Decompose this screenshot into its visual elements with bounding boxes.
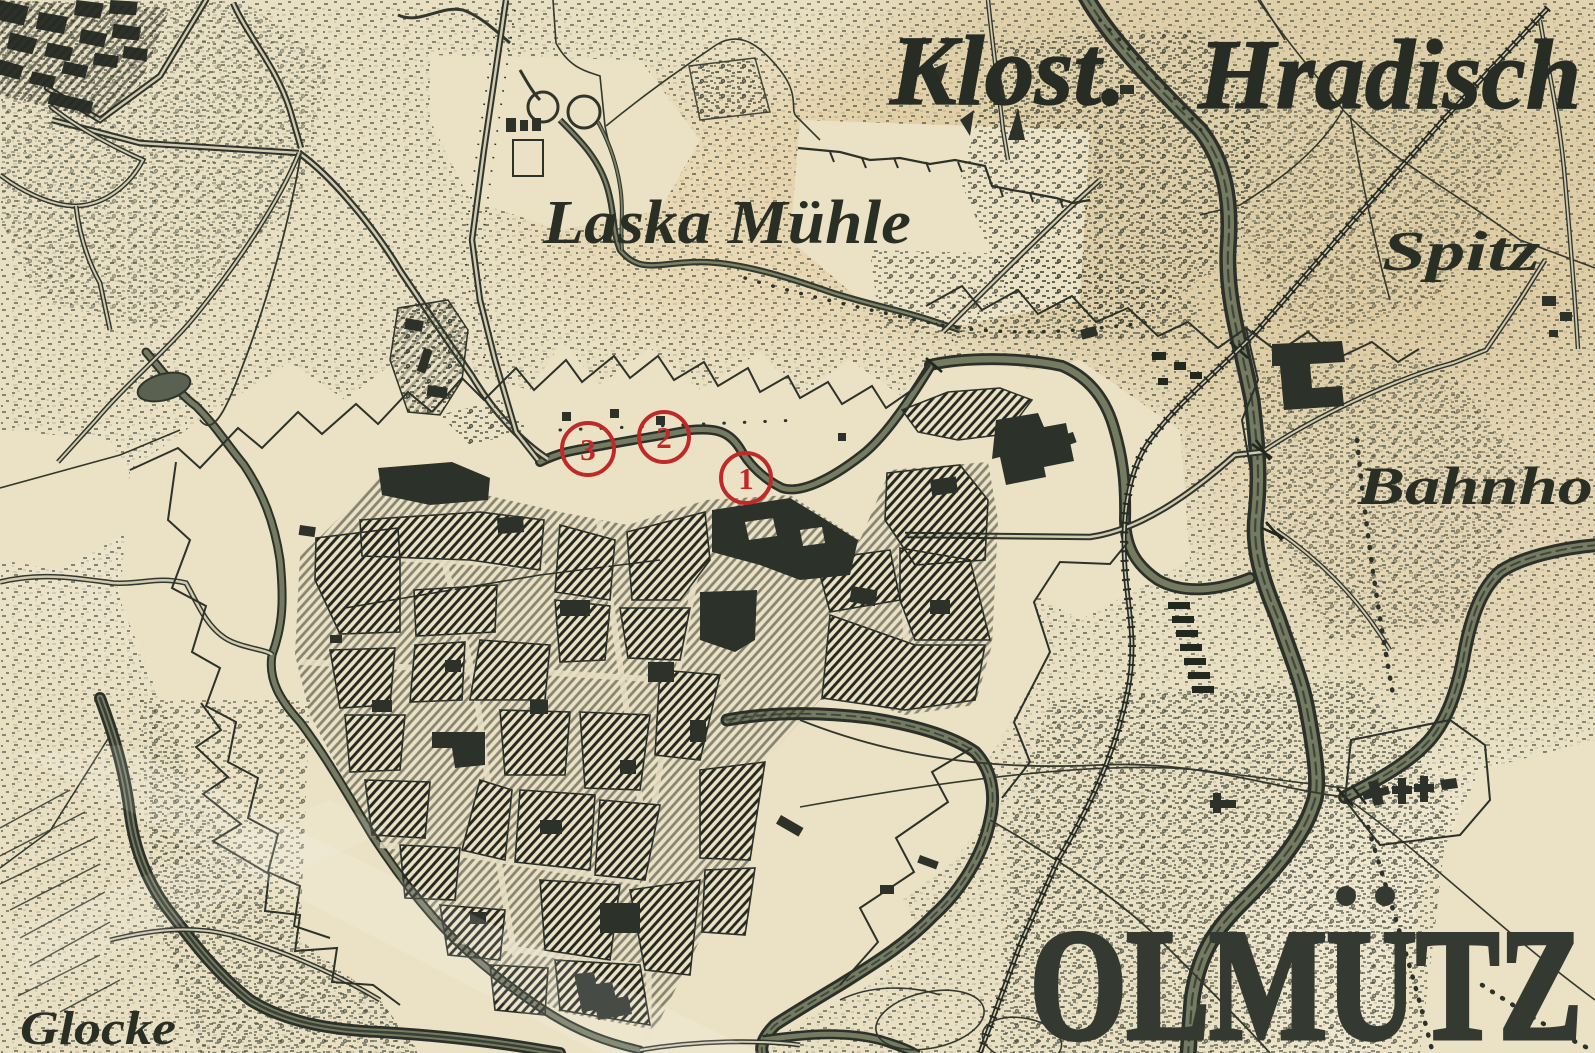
svg-text:Bahnho: Bahnho [1357, 456, 1593, 516]
svg-text:Spitz: Spitz [1382, 221, 1540, 283]
svg-text:3: 3 [580, 432, 596, 467]
svg-text:Hradisch: Hradisch [1197, 19, 1581, 130]
svg-text:Klost.: Klost. [889, 15, 1126, 126]
svg-text:OLMUTZ: OLMUTZ [1030, 898, 1582, 1053]
svg-text:Laska Mühle: Laska Mühle [542, 189, 911, 257]
svg-text:Glocke: Glocke [20, 1002, 176, 1053]
svg-text:1: 1 [738, 461, 754, 496]
svg-text:2: 2 [656, 420, 672, 455]
